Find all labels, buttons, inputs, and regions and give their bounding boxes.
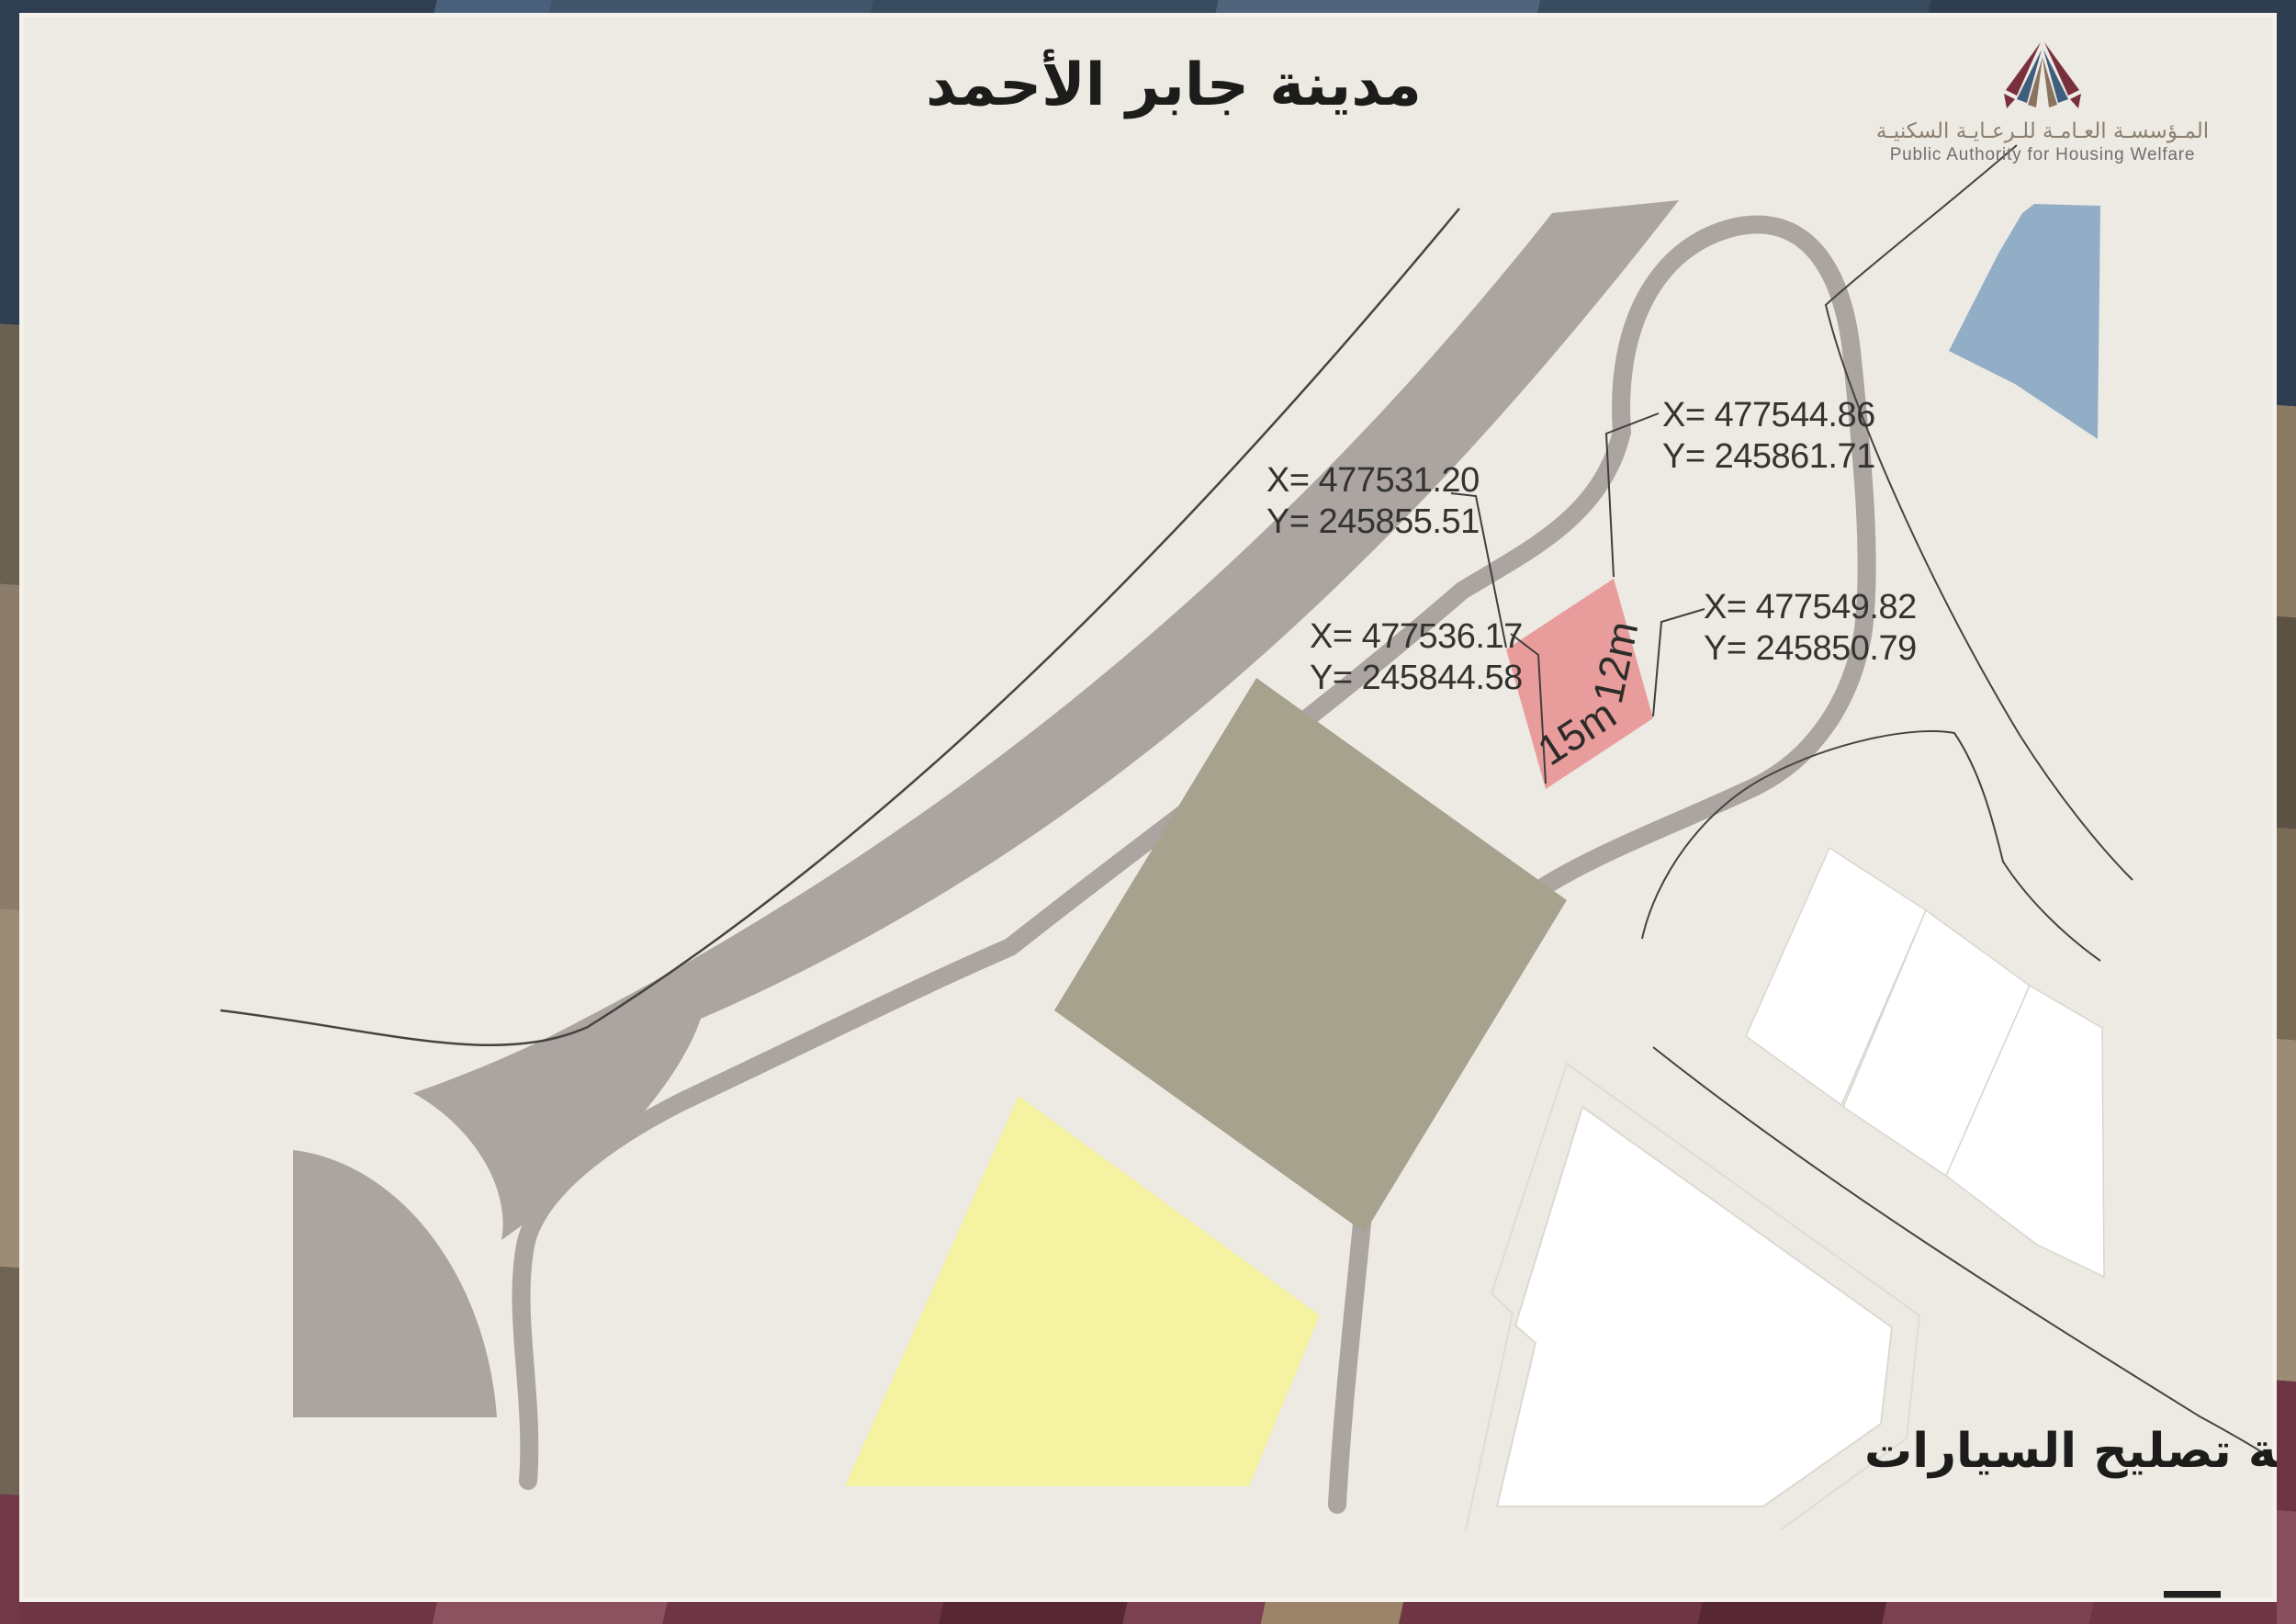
coord-left-x: X= 477531.20: [1266, 460, 1480, 502]
coord-right-y: Y= 245850.79: [1704, 628, 1917, 670]
coord-label-top: X= 477544.86 Y= 245861.71: [1662, 395, 1875, 478]
site-plan-map: [0, 0, 2296, 1624]
coord-bottom-y: Y= 245844.58: [1310, 658, 1523, 699]
frame-right: [2277, 0, 2296, 1624]
frame-left: [0, 0, 19, 1624]
frame-top: [0, 0, 2296, 13]
site-plan-sheet: { "title": "مدينة جابر الأحمد", "logo": …: [0, 0, 2296, 1624]
coord-label-left: X= 477531.20 Y= 245855.51: [1266, 460, 1480, 543]
frame-bottom: [0, 1602, 2296, 1624]
coord-right-x: X= 477549.82: [1704, 587, 1917, 628]
logo-arabic-name: المـؤسسـة العـامـة للـرعـايـة السكنيـة: [1874, 119, 2212, 143]
coord-label-right: X= 477549.82 Y= 245850.79: [1704, 587, 1917, 670]
coord-top-x: X= 477544.86: [1662, 395, 1875, 436]
site-use-label: ورشة تصليح السيارات: [1864, 1424, 2236, 1479]
coord-left-y: Y= 245855.51: [1266, 502, 1480, 543]
authority-logo: المـؤسسـة العـامـة للـرعـايـة السكنيـة P…: [1874, 40, 2212, 165]
housing-welfare-logo-icon: [2002, 40, 2083, 114]
coord-label-bottom: X= 477536.17 Y= 245844.58: [1310, 616, 1523, 699]
coord-top-y: Y= 245861.71: [1662, 436, 1875, 478]
coord-bottom-x: X= 477536.17: [1310, 616, 1523, 658]
page-title: مدينة جابر الأحمد: [898, 51, 1449, 119]
logo-english-name: Public Authority for Housing Welfare: [1874, 145, 2212, 165]
